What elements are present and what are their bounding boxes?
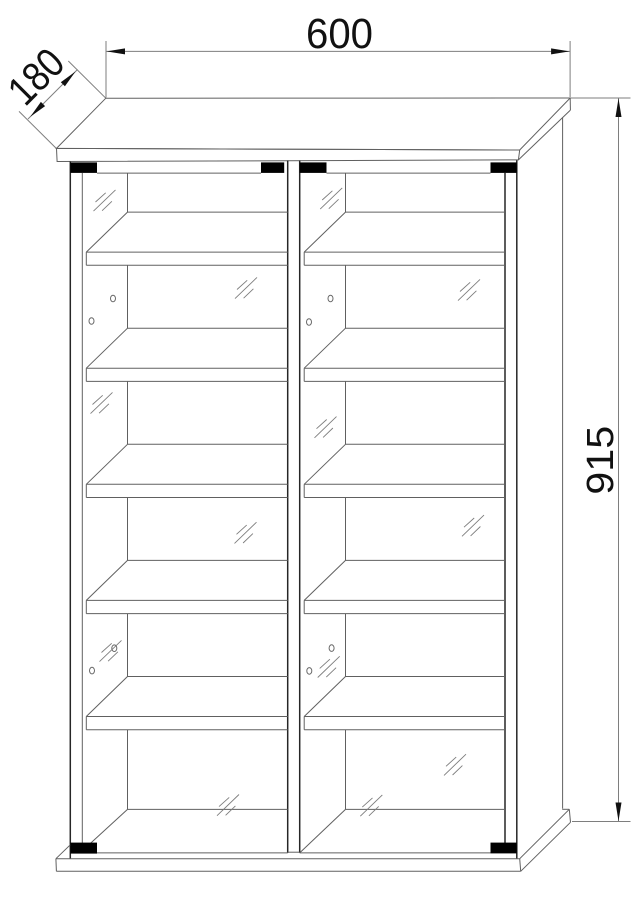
- svg-text:915: 915: [580, 426, 622, 495]
- svg-text:600: 600: [306, 10, 373, 58]
